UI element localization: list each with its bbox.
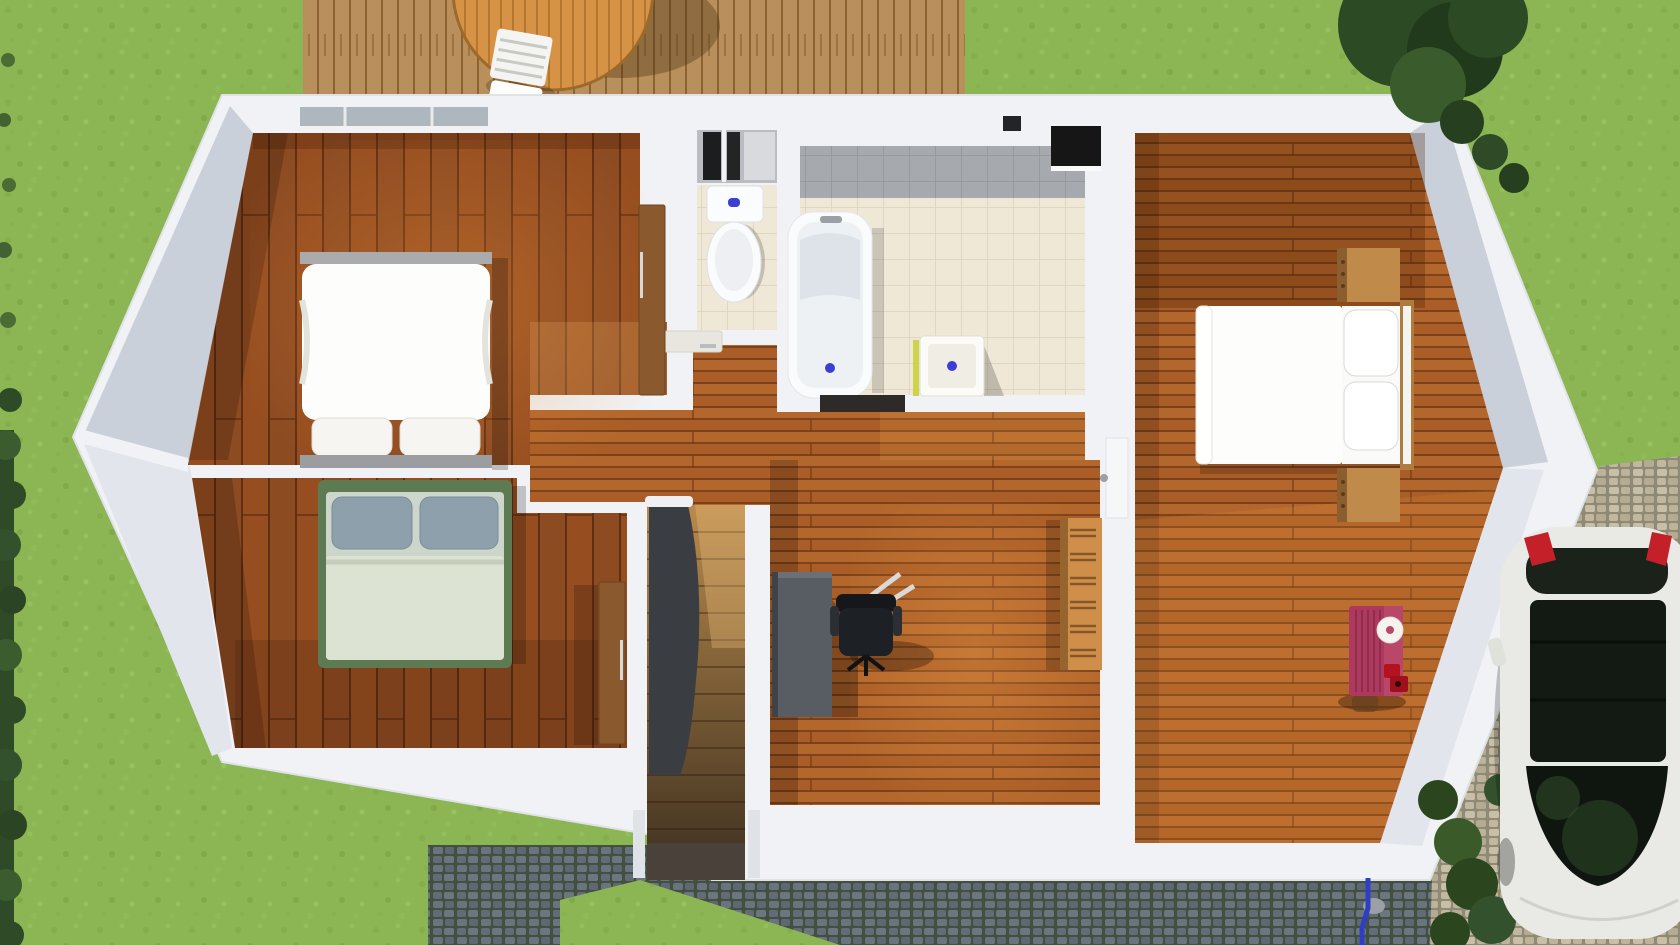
niche-dark-unit-right — [727, 132, 740, 180]
desk-top-edge — [772, 572, 832, 578]
hedge-tuft — [1, 53, 15, 67]
wc-door-handle — [700, 344, 716, 348]
staircase — [645, 496, 745, 880]
chair-seat — [839, 608, 893, 656]
wall-vent — [1003, 116, 1021, 131]
handle-dot — [1341, 480, 1345, 484]
toy-dot — [1395, 681, 1401, 687]
bed1-pillow-right — [400, 418, 480, 456]
bedroom1-window — [300, 107, 488, 126]
bed2-shadow — [512, 486, 526, 664]
bed1-footboard — [300, 252, 492, 264]
bed2-pillow-left — [332, 497, 412, 549]
towel — [913, 340, 919, 396]
stairwell-void — [647, 843, 745, 880]
corner-bush — [1440, 100, 1484, 144]
bed3-pillow-bottom — [1344, 382, 1398, 450]
niche-divider — [722, 130, 726, 182]
sink-drain — [947, 361, 957, 371]
handle-dot — [1341, 284, 1345, 288]
desk — [772, 572, 832, 717]
nightstand-bottom — [1337, 468, 1400, 522]
bedroom1-wardrobe-door — [639, 205, 665, 395]
radiator-ledge — [1051, 166, 1101, 171]
desk-side-edge — [772, 572, 778, 717]
bed3-headboard-panel — [1403, 306, 1411, 464]
hedge-tuft — [2, 178, 16, 192]
dresser-clock-center — [1386, 626, 1394, 634]
windshield-reflection-2 — [1536, 776, 1580, 820]
handle-dot — [1341, 504, 1345, 508]
bedroom3-door-handle — [1100, 474, 1108, 482]
niche-shelf — [744, 132, 775, 180]
car-roof — [1530, 600, 1666, 762]
handle-dot — [1341, 260, 1345, 264]
niche-dark-unit-left — [703, 132, 721, 180]
bed2-duvet — [326, 556, 504, 660]
handle-dot — [1341, 492, 1345, 496]
radiator — [1051, 126, 1101, 168]
bedroom3-door-leaf — [1106, 438, 1128, 518]
chair-armpad-left — [830, 606, 839, 636]
tub-shadow — [872, 228, 884, 393]
bush — [1418, 780, 1458, 820]
bed1-headboard — [300, 455, 492, 468]
bed3-duvet-roll — [1196, 306, 1212, 464]
bed1-shadow — [492, 258, 508, 470]
bookshelf-shadow — [1046, 520, 1060, 670]
white-car — [1487, 527, 1680, 939]
toilet-seat — [715, 229, 753, 291]
bookshelf-side — [1060, 518, 1068, 670]
nightstand-top — [1337, 248, 1400, 302]
floorplan-render — [0, 0, 1680, 945]
bathroom-door-opening — [820, 395, 905, 412]
bathtub-faucet — [820, 216, 842, 223]
hedge-tuft — [0, 312, 16, 328]
bed2-pillow-right — [420, 497, 498, 549]
toilet — [707, 186, 765, 302]
bed3-duvet — [1198, 306, 1342, 464]
scene-canvas — [0, 0, 1680, 945]
bathtub-inner-shading — [800, 233, 860, 300]
bed3-pillow-top — [1344, 310, 1398, 376]
bed1-pillow-left — [312, 418, 392, 456]
red-toy-1 — [1384, 664, 1400, 678]
wardrobe2-handle — [620, 640, 623, 680]
dresser-floor-shade — [1352, 694, 1378, 712]
car-wheel-hint — [1497, 838, 1515, 886]
bathtub-drain — [825, 363, 835, 373]
bottom-wall-pillar-left — [633, 810, 645, 878]
wardrobe1-handle — [640, 252, 643, 298]
corner-bush — [1499, 163, 1529, 193]
chair-armpad-right — [893, 606, 902, 636]
hall-light — [880, 412, 1085, 460]
wardrobe2-shadow — [574, 585, 598, 745]
toilet-flush-button — [728, 198, 740, 207]
banister-cap — [645, 496, 693, 507]
bed1-duvet — [302, 264, 490, 420]
bottom-wall-pillar-right — [748, 810, 760, 878]
bathroom-gray-tile-band — [800, 146, 1085, 198]
handle-dot — [1341, 272, 1345, 276]
corner-bush — [1472, 134, 1508, 170]
house — [73, 95, 1597, 880]
